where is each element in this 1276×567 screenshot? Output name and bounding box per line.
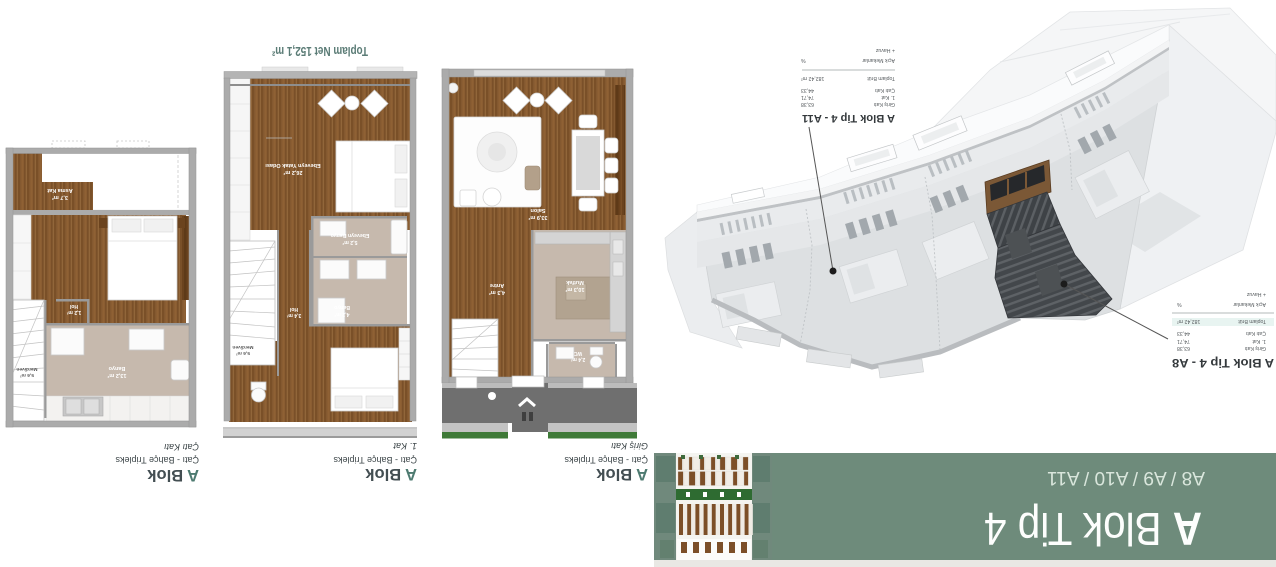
svg-text:Yatak Odası: Yatak Odası — [342, 370, 374, 376]
svg-text:4,3 m²: 4,3 m² — [489, 289, 505, 296]
svg-text:Çatı - Bahçe Tripleks: Çatı - Bahçe Tripleks — [115, 455, 199, 465]
svg-text:12,9 m²: 12,9 m² — [348, 377, 367, 384]
svg-text:Çatı Katı: Çatı Katı — [163, 442, 199, 452]
svg-text:A Blok Tip 4: A Blok Tip 4 — [984, 503, 1202, 555]
svg-text:Hol: Hol — [289, 306, 298, 312]
svg-text:Çatı - Bahçe Tripleks: Çatı - Bahçe Tripleks — [333, 455, 417, 465]
svg-text:26,2 m²: 26,2 m² — [283, 169, 302, 176]
svg-text:63,38: 63,38 — [801, 101, 814, 107]
svg-text:33,9 m²: 33,9 m² — [528, 214, 547, 221]
svg-text:44,33: 44,33 — [1177, 330, 1190, 336]
svg-text:Ebeveyn Banyo: Ebeveyn Banyo — [331, 232, 370, 238]
svg-text:15,9 m²: 15,9 m² — [132, 266, 151, 273]
svg-text:Giriş Katı: Giriş Katı — [874, 101, 895, 107]
svg-text:Toplam Brüt: Toplam Brüt — [1238, 318, 1266, 324]
svg-text:Açık Mekanlar: Açık Mekanlar — [862, 57, 895, 63]
svg-text:Hol: Hol — [69, 303, 78, 309]
svg-text:Asma Kat: Asma Kat — [47, 187, 73, 193]
svg-text:74,71: 74,71 — [1177, 338, 1190, 344]
svg-text:Ebeveyn Yatak Odası: Ebeveyn Yatak Odası — [265, 162, 321, 168]
svg-text:A Blok Tip 4 - A11: A Blok Tip 4 - A11 — [802, 112, 895, 124]
svg-text:Merdiven: Merdiven — [16, 366, 37, 372]
svg-text:5,2 m²: 5,2 m² — [342, 239, 357, 245]
svg-text:A Blok: A Blok — [596, 465, 648, 483]
svg-text:13,2 m²: 13,2 m² — [107, 372, 126, 379]
svg-text:Çatı Katı: Çatı Katı — [875, 87, 895, 93]
svg-text:A Blok Tip 4 - A8: A Blok Tip 4 - A8 — [1171, 356, 1274, 368]
svg-text:Mutfak: Mutfak — [565, 279, 584, 285]
svg-text:Giriş Katı: Giriş Katı — [610, 441, 648, 451]
svg-text:74,71: 74,71 — [801, 94, 814, 100]
svg-text:A Blok: A Blok — [147, 466, 199, 484]
svg-text:1. Kat: 1. Kat — [393, 441, 417, 451]
svg-text:%: % — [1177, 301, 1182, 307]
svg-text:Açık Mekanlar: Açık Mekanlar — [1233, 301, 1266, 307]
svg-text:A Blok: A Blok — [365, 465, 417, 483]
svg-text:3,7 m²: 3,7 m² — [52, 194, 68, 201]
svg-text:Yatak Odası: Yatak Odası — [126, 259, 158, 265]
svg-text:1. Kat: 1. Kat — [881, 94, 895, 100]
svg-text:Salon: Salon — [530, 207, 546, 213]
svg-text:63,38: 63,38 — [1177, 345, 1190, 351]
svg-text:Antre: Antre — [490, 282, 504, 288]
svg-text:2,4 m²: 2,4 m² — [570, 356, 585, 362]
svg-text:Çatı - Bahçe Tripleks: Çatı - Bahçe Tripleks — [564, 455, 648, 465]
svg-text:Toplam Net 152,1 m²: Toplam Net 152,1 m² — [272, 44, 368, 58]
svg-text:10,3 m²: 10,3 m² — [565, 286, 584, 293]
svg-text:Toplam Brüt: Toplam Brüt — [867, 75, 895, 81]
svg-text:+ Havuz: + Havuz — [875, 47, 895, 53]
svg-text:Çatı Katı: Çatı Katı — [1246, 330, 1266, 336]
svg-text:+ Havuz: + Havuz — [1246, 291, 1266, 297]
svg-text:1. Kat: 1. Kat — [1252, 338, 1266, 344]
svg-text:4,2 m²: 4,2 m² — [334, 311, 349, 317]
svg-text:182,42 m²: 182,42 m² — [801, 75, 825, 81]
svg-text:5,6 m²: 5,6 m² — [20, 372, 34, 378]
svg-text:Banyo: Banyo — [108, 365, 125, 371]
svg-text:3,4 m²: 3,4 m² — [286, 312, 301, 318]
svg-text:%: % — [801, 57, 806, 63]
svg-text:Giriş Katı: Giriş Katı — [1245, 345, 1266, 351]
svg-text:Banyo: Banyo — [334, 304, 350, 310]
svg-text:44,33: 44,33 — [801, 87, 814, 93]
svg-text:A8 / A9 / A10 / A11: A8 / A9 / A10 / A11 — [1047, 467, 1205, 488]
svg-text:WC: WC — [573, 350, 582, 356]
svg-text:Merdiven: Merdiven — [232, 344, 253, 350]
svg-text:1,2 m²: 1,2 m² — [66, 309, 81, 315]
svg-text:182,42 m²: 182,42 m² — [1177, 318, 1201, 324]
svg-text:5,6 m²: 5,6 m² — [236, 350, 250, 356]
